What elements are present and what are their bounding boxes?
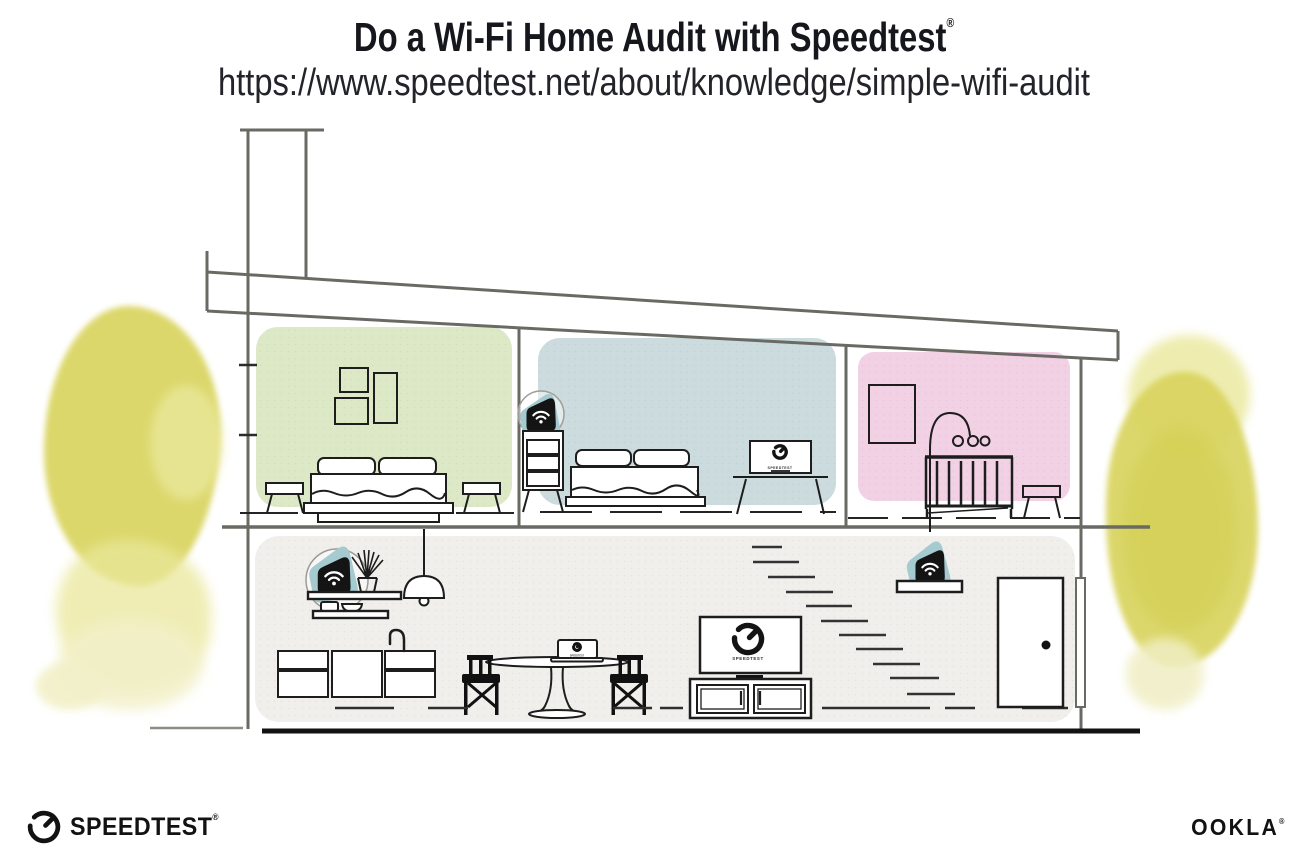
mattress [311, 474, 446, 504]
room-nursery-texture [858, 352, 1070, 501]
bed-platform [304, 503, 453, 513]
tv-stand [771, 470, 790, 473]
wall-shelf-upper [308, 592, 401, 599]
roof-top-edge [207, 272, 1118, 331]
media-console [690, 679, 811, 718]
mattress [571, 467, 698, 498]
bed-base [318, 513, 439, 522]
lamp-shade [404, 576, 444, 598]
ookla-logo-text: OOKLA [1191, 814, 1279, 840]
table-base [529, 710, 585, 718]
bed-middle [566, 450, 705, 506]
speedtest-gauge-logo-icon [26, 809, 62, 845]
pillow [576, 450, 631, 466]
screen-label: SPEEDTEST [768, 466, 793, 470]
registered-mark: ® [1279, 817, 1284, 826]
speedtest-logo[interactable]: SPEEDTEST® [26, 809, 230, 845]
screen-label: SPEEDTEST [732, 656, 764, 661]
laptop-base [551, 658, 603, 662]
bed-left [304, 458, 453, 522]
pillow [634, 450, 689, 466]
entry-shelf [897, 581, 962, 592]
tv-living-room: SPEEDTEST [700, 617, 801, 679]
ookla-logo[interactable]: OOKLA® [1191, 814, 1284, 841]
laptop-dining: SPEEDTEST [551, 640, 603, 662]
right-wall-cross-section [1076, 578, 1085, 707]
registered-mark: ® [212, 812, 219, 822]
wall-shelf-lower [313, 611, 388, 618]
front-door [998, 578, 1063, 707]
speedtest-gauge-icon [574, 644, 581, 651]
door-knob [1042, 641, 1051, 650]
speedtest-logo-text: SPEEDTEST® [70, 813, 219, 842]
infographic-canvas: Do a Wi-Fi Home Audit with Speedtest® ht… [0, 0, 1308, 861]
ground [150, 728, 1140, 731]
bed-platform [566, 497, 705, 506]
pillow [379, 458, 436, 475]
pillow [318, 458, 375, 475]
cup [321, 602, 338, 611]
house-illustration: SPEEDTEST [0, 0, 1308, 861]
